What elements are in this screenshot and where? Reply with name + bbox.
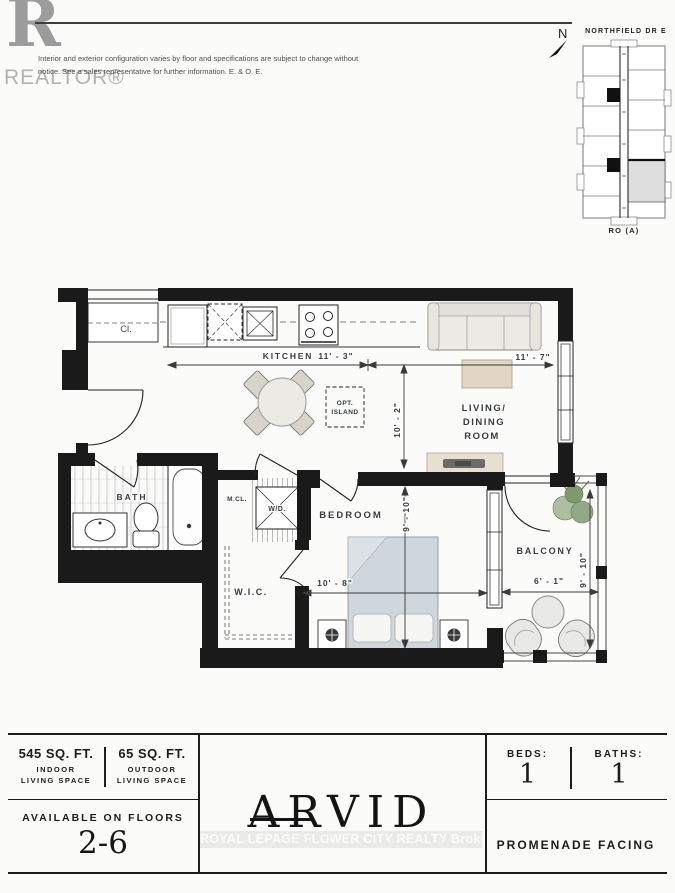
beds-value: 1 xyxy=(485,760,570,790)
bedroom-window xyxy=(487,490,502,608)
toilet-icon xyxy=(133,503,159,547)
elevator-core xyxy=(607,158,620,172)
footer-subdivider-left xyxy=(8,799,198,800)
tv-console xyxy=(427,453,503,475)
living-label-1: LIVING/ xyxy=(462,403,507,414)
footer-top-line xyxy=(8,733,667,735)
balcony-width-dim: 6' - 1" xyxy=(534,576,564,586)
kitchen-width-dim: 11' - 3" xyxy=(318,351,353,361)
indoor-sqft-block: 545 SQ. FT. INDOOR LIVING SPACE xyxy=(8,746,104,786)
floors-label: AVAILABLE ON FLOORS xyxy=(8,812,198,824)
header-divider xyxy=(35,22,572,24)
kitchen-label: KITCHEN xyxy=(263,351,313,361)
closet-front-wall xyxy=(88,290,158,299)
living-room-window xyxy=(558,341,573,443)
living-label-2: DINING xyxy=(463,417,505,428)
entry-closet xyxy=(88,303,158,342)
street-label: NORTHFIELD DR E xyxy=(585,28,667,35)
wd-label: W/D. xyxy=(268,506,286,513)
outdoor-sqft-block: 65 SQ. FT. OUTDOOR LIVING SPACE xyxy=(106,746,198,786)
balcony-door xyxy=(505,476,550,531)
balcony-table xyxy=(532,596,564,628)
kitchen-sink-icon xyxy=(243,307,277,340)
island-label-2: ISLAND xyxy=(331,409,358,416)
mcl-label: M.CL. xyxy=(227,496,247,503)
wic-door xyxy=(280,550,303,586)
footer-bottom-line xyxy=(8,872,667,874)
unit-code-label: RO (A) xyxy=(609,226,640,235)
indoor-sqft-label-1: INDOOR xyxy=(8,764,104,775)
bath-label: BATH xyxy=(117,492,148,502)
sofa xyxy=(428,303,541,350)
coffee-table xyxy=(462,360,512,388)
outdoor-sqft-label-2: LIVING SPACE xyxy=(106,775,198,786)
wic-label: W.I.C. xyxy=(234,587,268,597)
floor-plan-page: { "header": { "logo_letter": "R", "logo_… xyxy=(0,0,675,893)
living-width-dim: 11' - 7" xyxy=(515,352,550,362)
building-key-plan: N NORTHFIELD DR E RO (A) xyxy=(543,20,673,238)
facing-label: PROMENADE FACING xyxy=(485,838,667,852)
indoor-sqft-label-2: LIVING SPACE xyxy=(8,775,104,786)
vanity-sink-icon xyxy=(73,513,127,547)
island-label-1: OPT. xyxy=(337,400,353,407)
indoor-sqft-value: 545 SQ. FT. xyxy=(8,746,104,761)
fridge-icon xyxy=(168,305,207,347)
unit-floor-plan: OPT. ISLAND xyxy=(55,280,620,680)
realtor-logo-icon: R xyxy=(6,0,61,56)
beds-block: BEDS: 1 xyxy=(485,749,570,790)
bedroom-door xyxy=(320,479,358,501)
north-arrow-icon xyxy=(549,40,567,58)
optional-dishwasher-icon xyxy=(208,304,242,340)
closet-label: Cl. xyxy=(120,324,132,335)
nightstand xyxy=(318,620,346,650)
dining-table xyxy=(258,378,306,426)
baths-block: BATHS: 1 xyxy=(571,749,667,790)
pillow xyxy=(353,614,391,642)
floors-value: 2-6 xyxy=(8,828,198,859)
bedroom-depth-dim: 9' - 10" xyxy=(401,496,411,532)
outdoor-sqft-label-1: OUTDOOR xyxy=(106,764,198,775)
bedroom-width-dim: 10' - 8" xyxy=(317,578,353,588)
stove-icon xyxy=(299,305,338,345)
north-label: N xyxy=(558,26,567,41)
nightstand xyxy=(440,620,468,650)
elevator-core xyxy=(607,88,620,102)
entry-door xyxy=(88,390,143,445)
disclaimer-line-1: Interior and exterior configuration vari… xyxy=(38,52,383,65)
footer-subdivider-right xyxy=(485,799,667,800)
keyplan-building-outline xyxy=(577,40,671,225)
bedroom-label: BEDROOM xyxy=(319,510,383,521)
disclaimer-line-2: notice. See a sales representative for f… xyxy=(38,65,383,78)
balcony-label: BALCONY xyxy=(516,546,573,556)
outdoor-sqft-value: 65 SQ. FT. xyxy=(106,746,198,761)
laundry-door xyxy=(255,454,297,475)
living-label-3: ROOM xyxy=(464,431,500,442)
baths-value: 1 xyxy=(571,760,667,790)
pillow xyxy=(395,614,433,642)
balcony-depth-dim: 9' - 10" xyxy=(578,552,588,588)
optional-island: OPT. ISLAND xyxy=(326,387,364,427)
highlighted-unit xyxy=(628,160,665,202)
brokerage-watermark: ROYAL LEPAGE FLOWER CITY REALTY Brokerag… xyxy=(200,831,482,848)
living-depth-dim: 10' - 2" xyxy=(392,402,402,438)
brand-crossbar xyxy=(250,818,312,821)
disclaimer: Interior and exterior configuration vari… xyxy=(38,52,383,78)
